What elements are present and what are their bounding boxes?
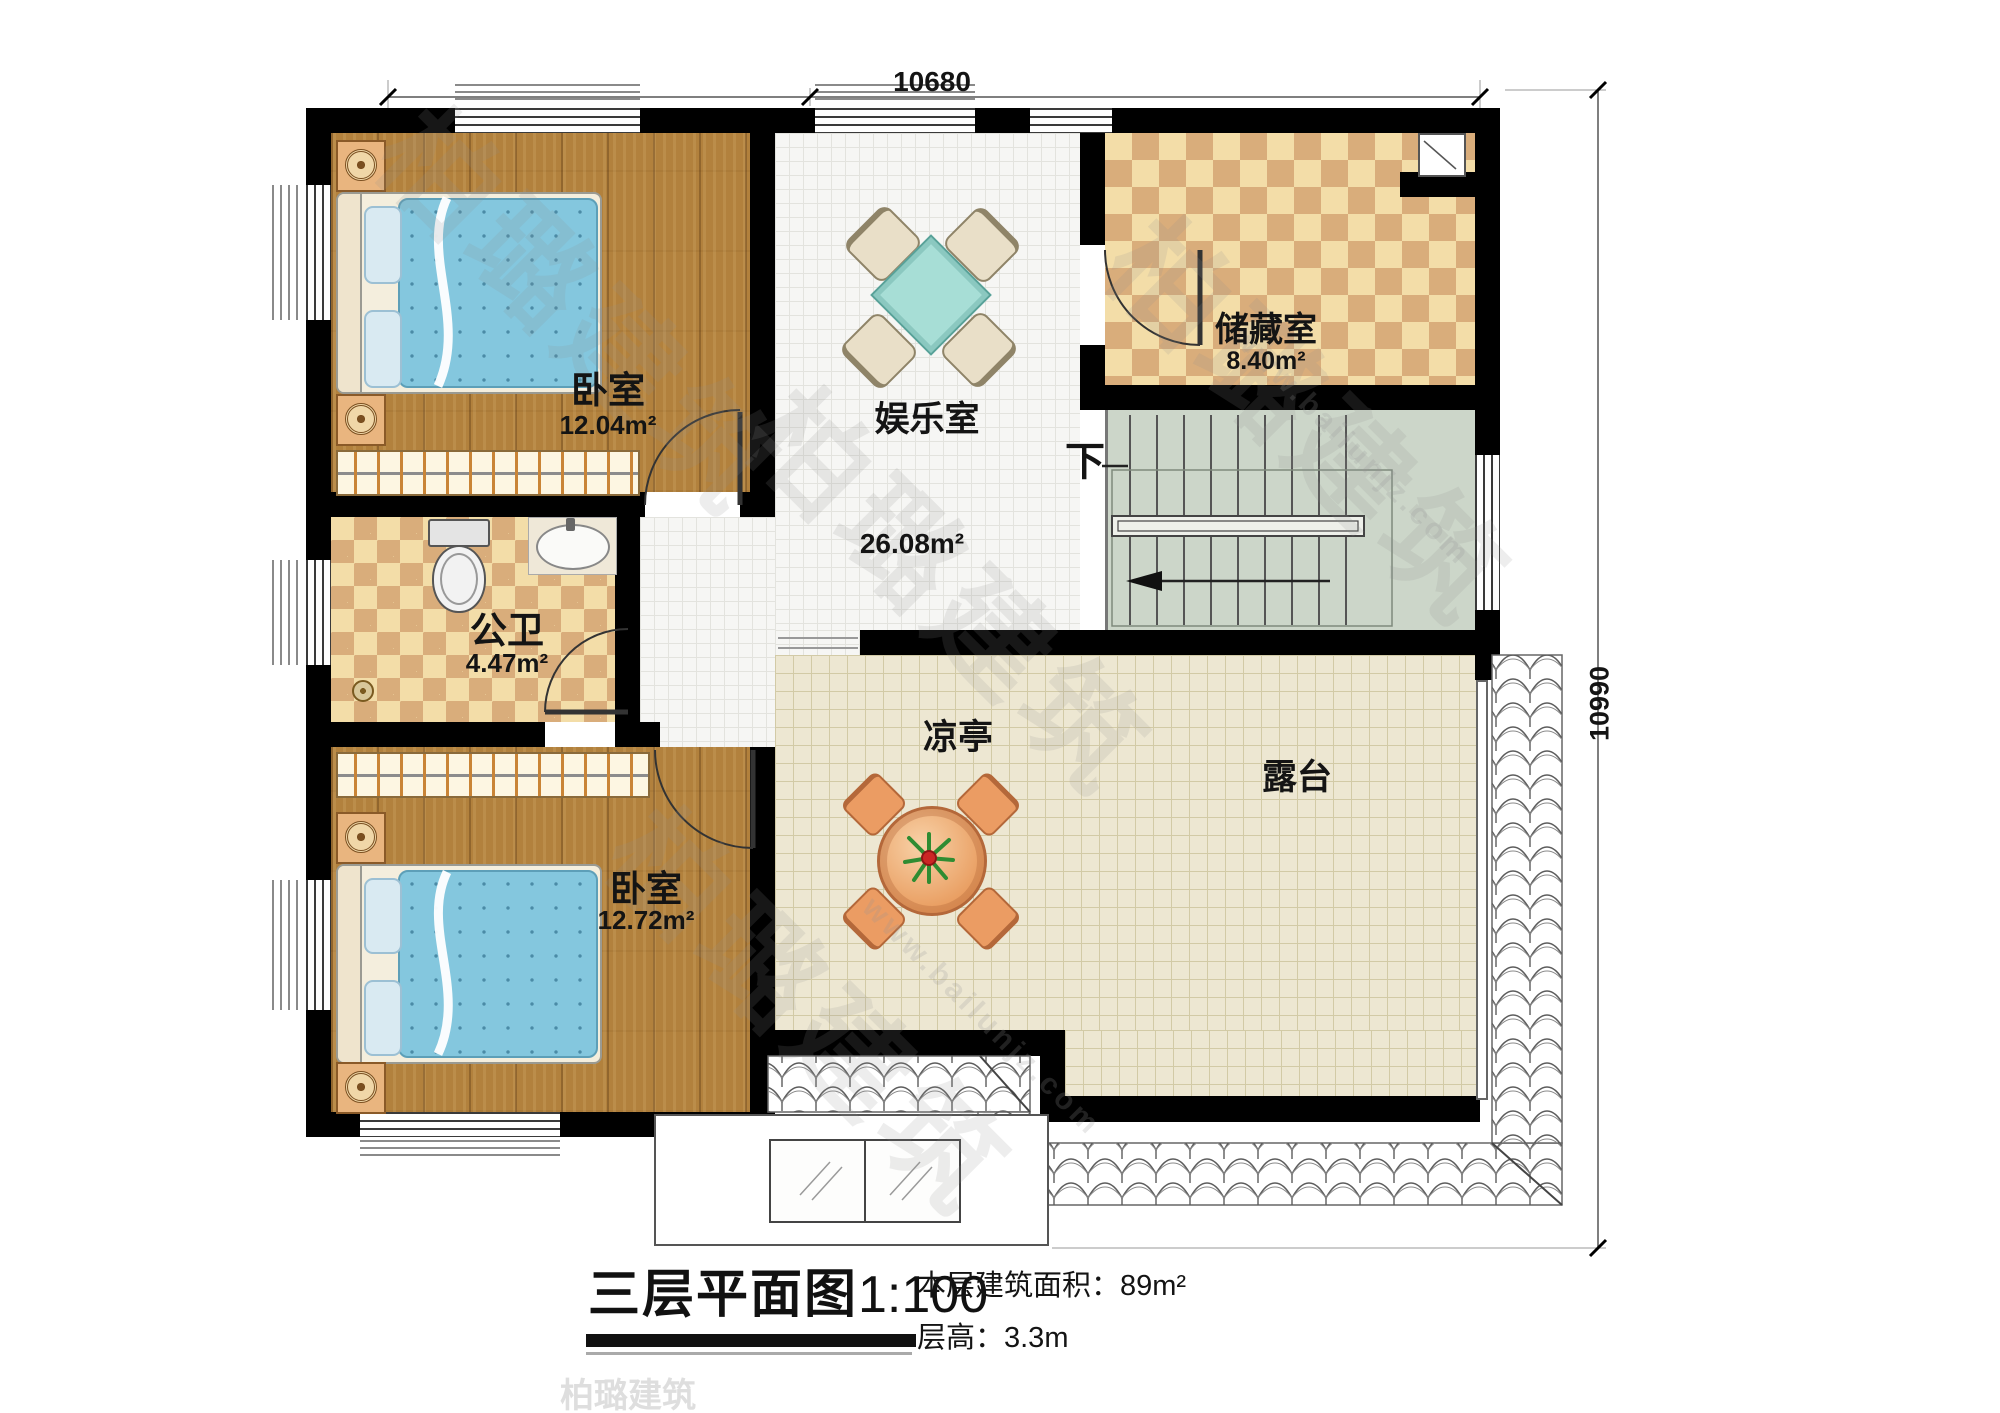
- room-area-bedroom-bottom: 12.72m²: [592, 907, 700, 933]
- window-top-bedroom: [455, 108, 640, 133]
- toilet-tank: [428, 519, 490, 547]
- page-title: 三层平面图: [588, 1266, 858, 1324]
- lamp-icon: [345, 821, 377, 853]
- terrace-floor-lower: [1065, 1030, 1480, 1096]
- lamp-icon: [345, 1071, 377, 1103]
- pillow: [364, 980, 402, 1056]
- lamp-icon: [345, 149, 377, 181]
- dimension-top-label: 10680: [872, 68, 992, 96]
- sink-tap-icon: [566, 518, 575, 531]
- floor-drain: [352, 680, 374, 702]
- toilet-bowl-inner: [440, 553, 478, 605]
- round-table: [877, 806, 987, 916]
- wall-stair-terrace: [860, 630, 1480, 655]
- dimension-right-label: 10990: [1587, 644, 1614, 764]
- pillow: [364, 878, 402, 954]
- mattress-bottom: [398, 870, 598, 1058]
- wall-bedroom-bottom-right: [750, 747, 775, 1137]
- room-label-pavilion: 凉亭: [919, 720, 997, 755]
- nightstand: [336, 812, 386, 864]
- wall-bedroom-top-bottom-b: [740, 492, 775, 517]
- nightstand: [336, 1062, 386, 1114]
- headboard: [338, 194, 362, 392]
- title-floor-height-note: 层高：3.3m: [917, 1324, 1068, 1353]
- footer-watermark: 柏璐建筑: [560, 1368, 696, 1413]
- nightstand: [336, 140, 386, 192]
- room-area-bedroom-top: 12.04m²: [548, 412, 668, 438]
- room-area-bathroom: 4.47m²: [452, 650, 562, 676]
- wall-bathroom-right: [615, 517, 640, 747]
- eave-lines-top-1: [455, 84, 640, 102]
- sill-lines-bottom: [360, 1140, 560, 1160]
- wall-bathroom-bottom-a: [306, 722, 545, 747]
- wall-terrace-bottom: [1040, 1096, 1480, 1122]
- room-label-bedroom-top: 卧室: [556, 372, 660, 409]
- wall-bathroom-bottom-b: [630, 722, 660, 747]
- window-bedroom-bottom-wall: [360, 1112, 560, 1137]
- pillow: [364, 206, 402, 284]
- storage-notch: [1418, 133, 1466, 177]
- room-area-entertainment: 26.08m²: [852, 530, 972, 558]
- closet-bottom: [336, 752, 650, 798]
- wall-storage-stair: [1080, 385, 1500, 410]
- title-area-note: 本层建筑面积：89m²: [917, 1272, 1186, 1301]
- nightstand: [336, 394, 386, 446]
- window-stair-right: [1475, 455, 1500, 610]
- room-label-terrace: 露台: [1258, 760, 1336, 795]
- mattress-top: [398, 198, 598, 388]
- window-left-bedroom-top: [306, 185, 331, 320]
- lamp-icon: [345, 403, 377, 435]
- room-area-storage: 8.40m²: [1213, 349, 1319, 374]
- sill-lines-left-3: [272, 880, 302, 1010]
- window-left-bedroom-bottom: [306, 880, 331, 1010]
- stair-floor: [1108, 410, 1475, 630]
- room-label-bedroom-bottom: 卧室: [603, 871, 689, 907]
- hallway-floor: [640, 517, 775, 747]
- pillow: [364, 310, 402, 388]
- wall-pavilion-bottom: [760, 1030, 1065, 1056]
- threshold-floor: [775, 630, 860, 655]
- room-label-entertainment: 娱乐室: [862, 402, 992, 437]
- sill-lines-left-1: [272, 185, 302, 320]
- window-left-bathroom: [306, 560, 331, 665]
- title-underline-thick: [586, 1334, 916, 1347]
- headboard: [338, 866, 362, 1062]
- window-top-storage: [1030, 108, 1112, 133]
- title-underline-thin: [586, 1352, 912, 1355]
- terrace-parapet: [1476, 680, 1488, 1100]
- window-top-entertainment: [815, 108, 975, 133]
- sill-lines-left-2: [272, 560, 302, 665]
- room-label-storage: 储藏室: [1208, 313, 1324, 347]
- floor-plan-sheet: 柏璐建筑 柏璐建筑 柏璐建筑 柏璐建筑 www.bailunjz.com www…: [0, 0, 2000, 1413]
- room-label-bathroom: 公卫: [467, 612, 547, 649]
- closet-top: [336, 450, 640, 496]
- stair-direction-label: 下: [1064, 442, 1106, 482]
- wall-bedroom-top-right: [750, 108, 775, 517]
